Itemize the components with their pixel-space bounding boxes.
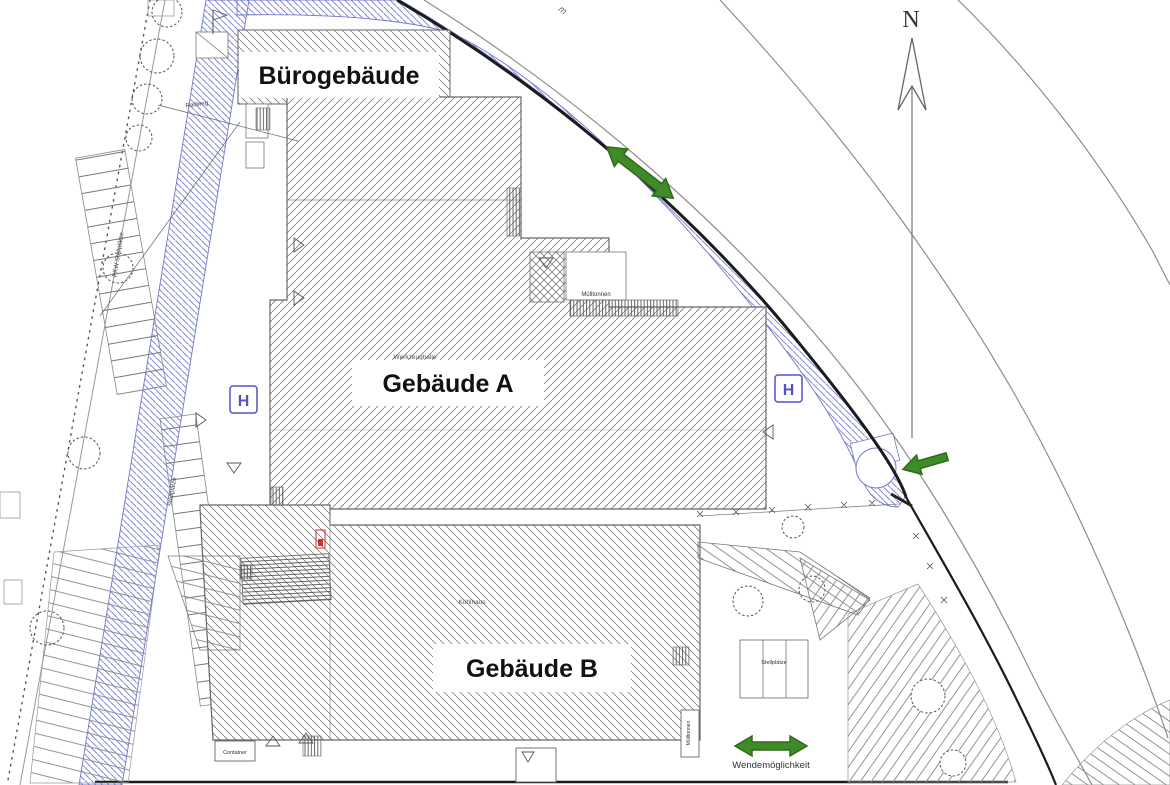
north-label: N	[902, 7, 919, 33]
building-b-label: Gebäude B	[466, 655, 598, 683]
tree-icon	[733, 586, 763, 616]
site-plan-page: Radweg PKW Stellplätze Stellplätze Werkz…	[0, 0, 1170, 785]
tree-icon	[152, 0, 182, 27]
stair-fan	[168, 556, 240, 650]
tree-icon	[68, 437, 100, 469]
kuehlhaus-label: Kühlhaus	[458, 599, 486, 606]
turning-circle	[856, 448, 896, 488]
ramp	[241, 554, 331, 605]
tree-icon	[126, 125, 152, 151]
container-label: Container	[223, 750, 247, 756]
double-arrow-icon-top	[600, 138, 680, 207]
wendemoeglichkeit-label: Wendemöglichkeit	[732, 760, 810, 771]
parking-fan-corner	[1062, 700, 1170, 785]
entry-arrow-icon	[900, 447, 950, 479]
building-b	[168, 505, 700, 782]
street-name-fragment: m	[557, 4, 570, 17]
building-a-label: Gebäude A	[382, 370, 513, 398]
bin-rack	[570, 300, 678, 316]
hydrant-right-label: H	[783, 382, 795, 399]
tree-icon	[911, 679, 945, 713]
building-a	[196, 97, 773, 509]
muelltonnen-bottom-label: Mülltonnen	[686, 721, 692, 746]
tree-icon	[940, 750, 966, 776]
stall-box	[740, 640, 808, 698]
double-arrow-icon-bottom	[735, 736, 807, 756]
stellplaetze-right-label: Stellplätze	[761, 660, 786, 666]
parking-strip-upper	[76, 149, 167, 394]
tree-icon	[782, 516, 804, 538]
office-label: Bürogebäude	[258, 62, 419, 90]
werkzeughalle-label: Werkzeughalle	[394, 354, 437, 361]
parking-fan-bottom-left	[30, 545, 160, 783]
site-plan-canvas: Radweg PKW Stellplätze Stellplätze Werkz…	[0, 0, 1170, 785]
muelltonnen-top-label: Mülltonnen	[581, 292, 610, 298]
north-arrow: N	[898, 7, 926, 438]
street-edge-far	[958, 0, 1170, 285]
hydrant-left-label: H	[238, 393, 250, 410]
